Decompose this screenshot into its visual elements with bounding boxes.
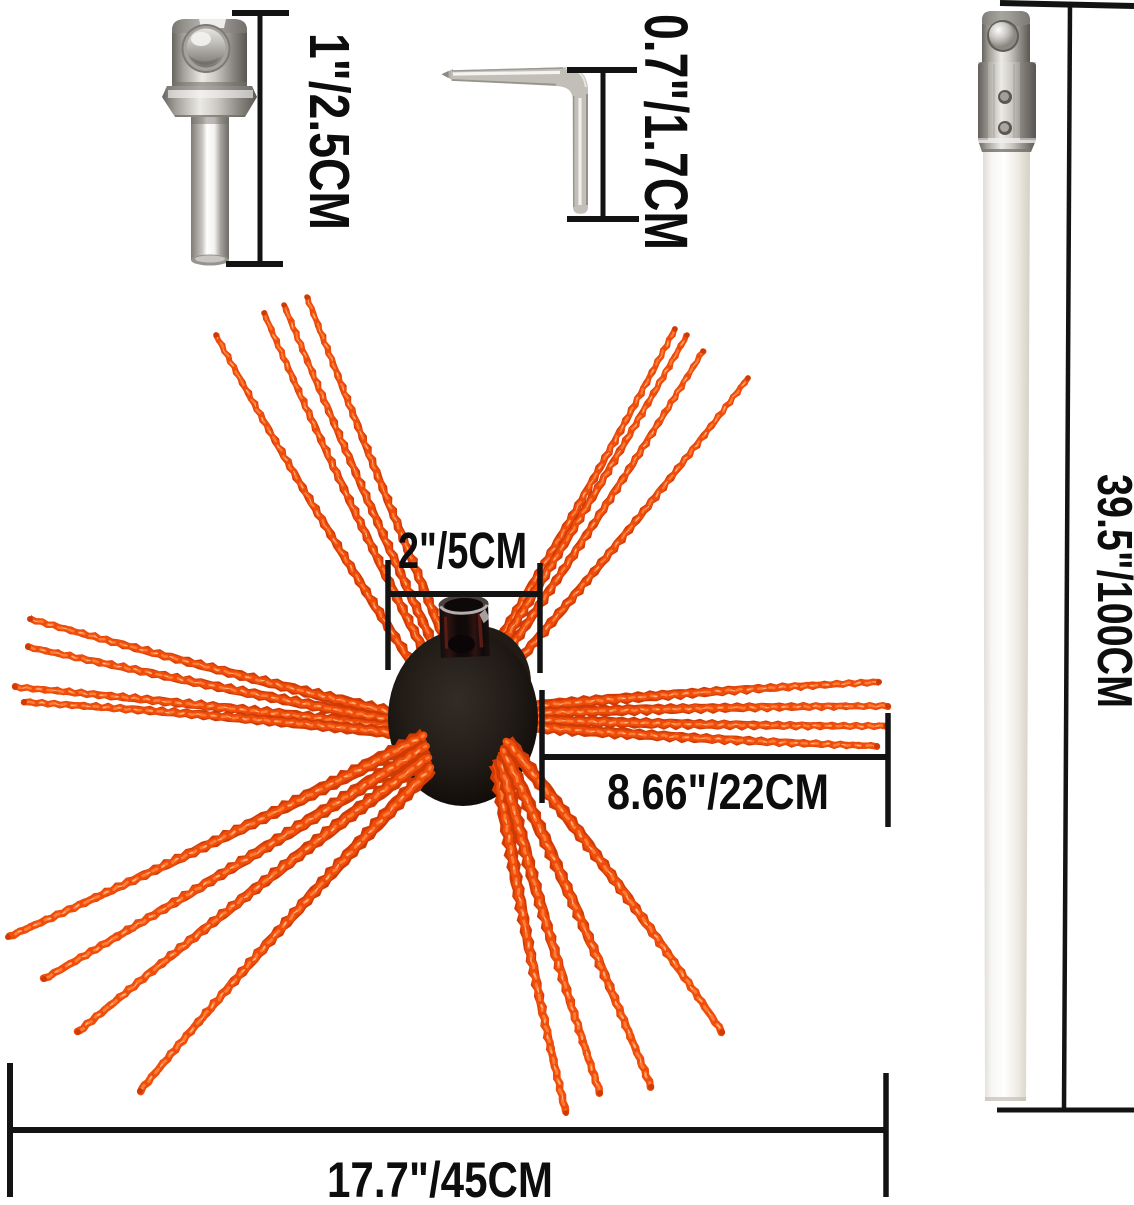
svg-text:0.7"/1.7CM: 0.7"/1.7CM xyxy=(632,14,700,250)
svg-text:8.66"/22CM: 8.66"/22CM xyxy=(607,764,829,820)
svg-text:17.7"/45CM: 17.7"/45CM xyxy=(327,1152,553,1200)
svg-text:39.5"/100CM: 39.5"/100CM xyxy=(1087,474,1134,708)
svg-text:2"/5CM: 2"/5CM xyxy=(398,522,527,579)
svg-text:1"/2.5CM: 1"/2.5CM xyxy=(297,33,361,230)
